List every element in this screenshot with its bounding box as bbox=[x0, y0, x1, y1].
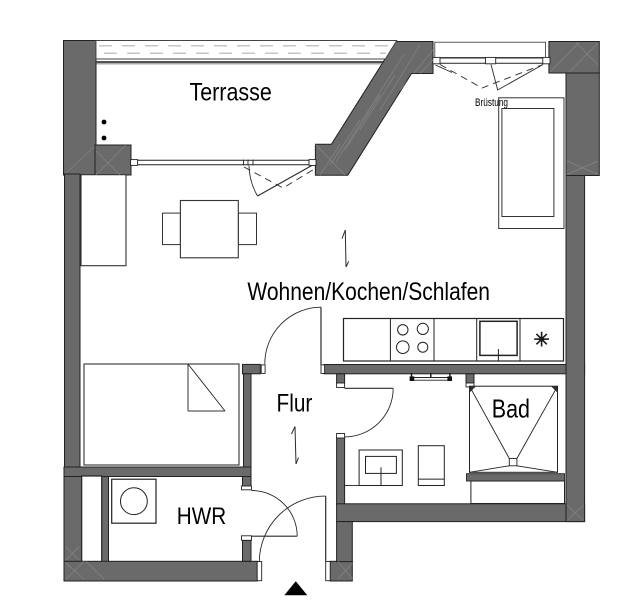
svg-text:Terrasse: Terrasse bbox=[190, 79, 272, 107]
svg-text:Brüstung: Brüstung bbox=[475, 97, 508, 109]
svg-text:Flur: Flur bbox=[277, 389, 313, 417]
svg-text:HWR: HWR bbox=[177, 504, 226, 530]
svg-text:Wohnen/Kochen/Schlafen: Wohnen/Kochen/Schlafen bbox=[247, 279, 490, 306]
svg-text:Bad: Bad bbox=[492, 393, 530, 423]
